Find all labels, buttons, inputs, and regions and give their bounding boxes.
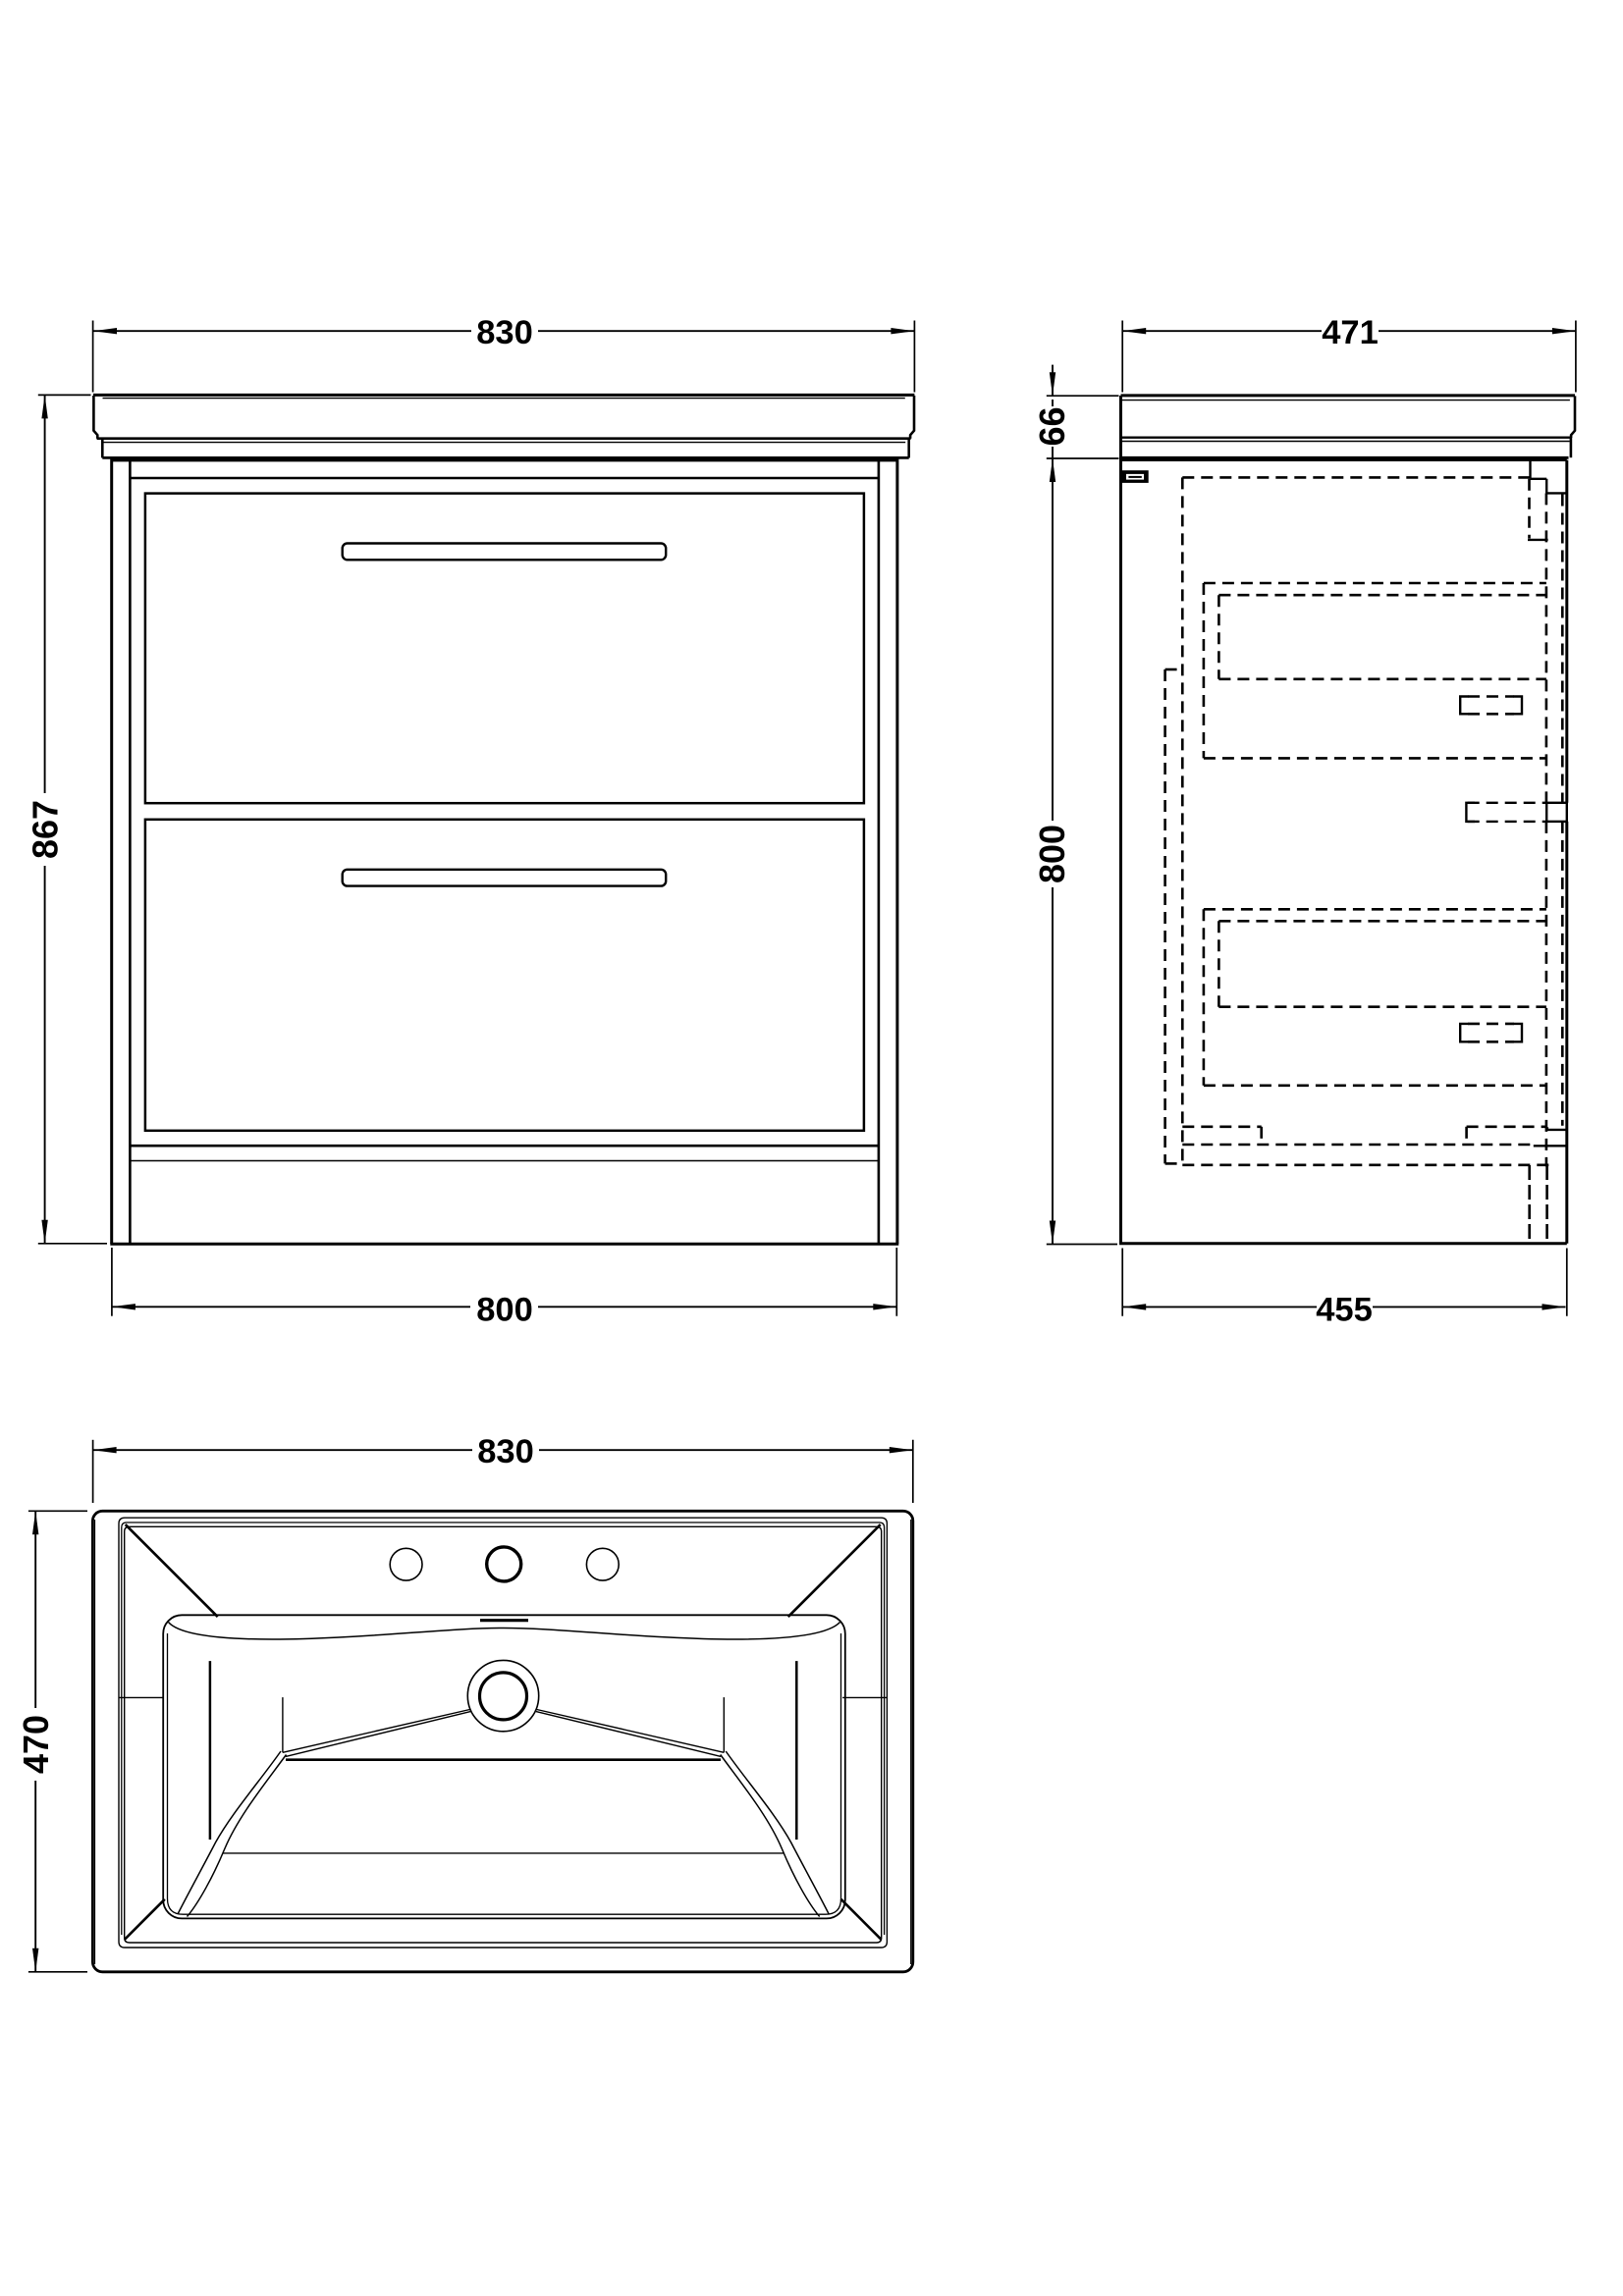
svg-text:470: 470 [16, 1715, 56, 1774]
svg-text:455: 455 [1316, 1291, 1373, 1328]
svg-text:66: 66 [1032, 406, 1072, 446]
svg-text:830: 830 [477, 1433, 534, 1470]
svg-text:830: 830 [476, 314, 533, 351]
svg-text:800: 800 [1032, 825, 1072, 883]
svg-text:867: 867 [25, 800, 65, 859]
svg-text:471: 471 [1322, 314, 1379, 351]
svg-text:800: 800 [476, 1291, 533, 1328]
